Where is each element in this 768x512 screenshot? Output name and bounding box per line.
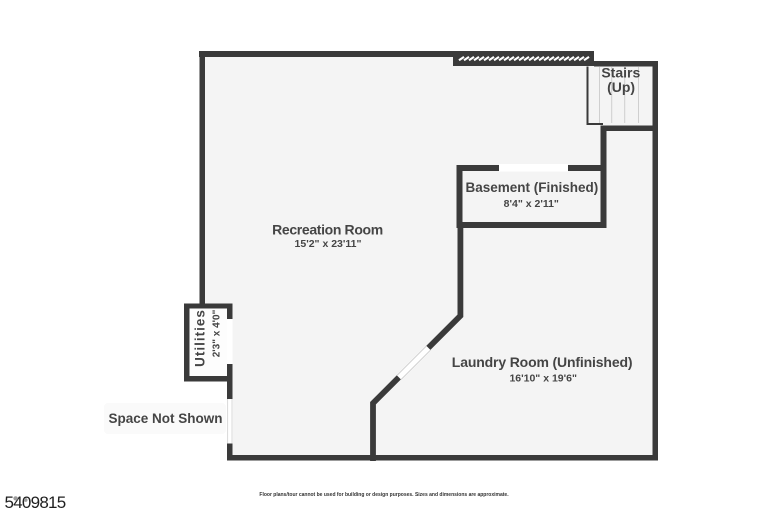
svg-text:8'4" x 2'11": 8'4" x 2'11" bbox=[504, 198, 559, 210]
svg-text:(Up): (Up) bbox=[607, 79, 635, 95]
svg-text:Recreation Room: Recreation Room bbox=[272, 221, 383, 237]
svg-text:Floor plans/tour cannot be use: Floor plans/tour cannot be used for buil… bbox=[259, 492, 509, 498]
svg-text:16'10" x 19'6": 16'10" x 19'6" bbox=[509, 373, 577, 385]
svg-text:2'3" x 4'0": 2'3" x 4'0" bbox=[212, 309, 223, 357]
svg-text:Laundry Room (Unfinished): Laundry Room (Unfinished) bbox=[452, 354, 633, 370]
svg-text:5409815: 5409815 bbox=[5, 493, 66, 512]
svg-text:Stairs: Stairs bbox=[601, 65, 640, 81]
svg-text:15'2" x 23'11": 15'2" x 23'11" bbox=[295, 238, 362, 250]
svg-text:Space Not Shown: Space Not Shown bbox=[108, 411, 222, 426]
svg-text:Basement (Finished): Basement (Finished) bbox=[466, 180, 599, 195]
svg-text:Utilities: Utilities bbox=[193, 309, 208, 367]
